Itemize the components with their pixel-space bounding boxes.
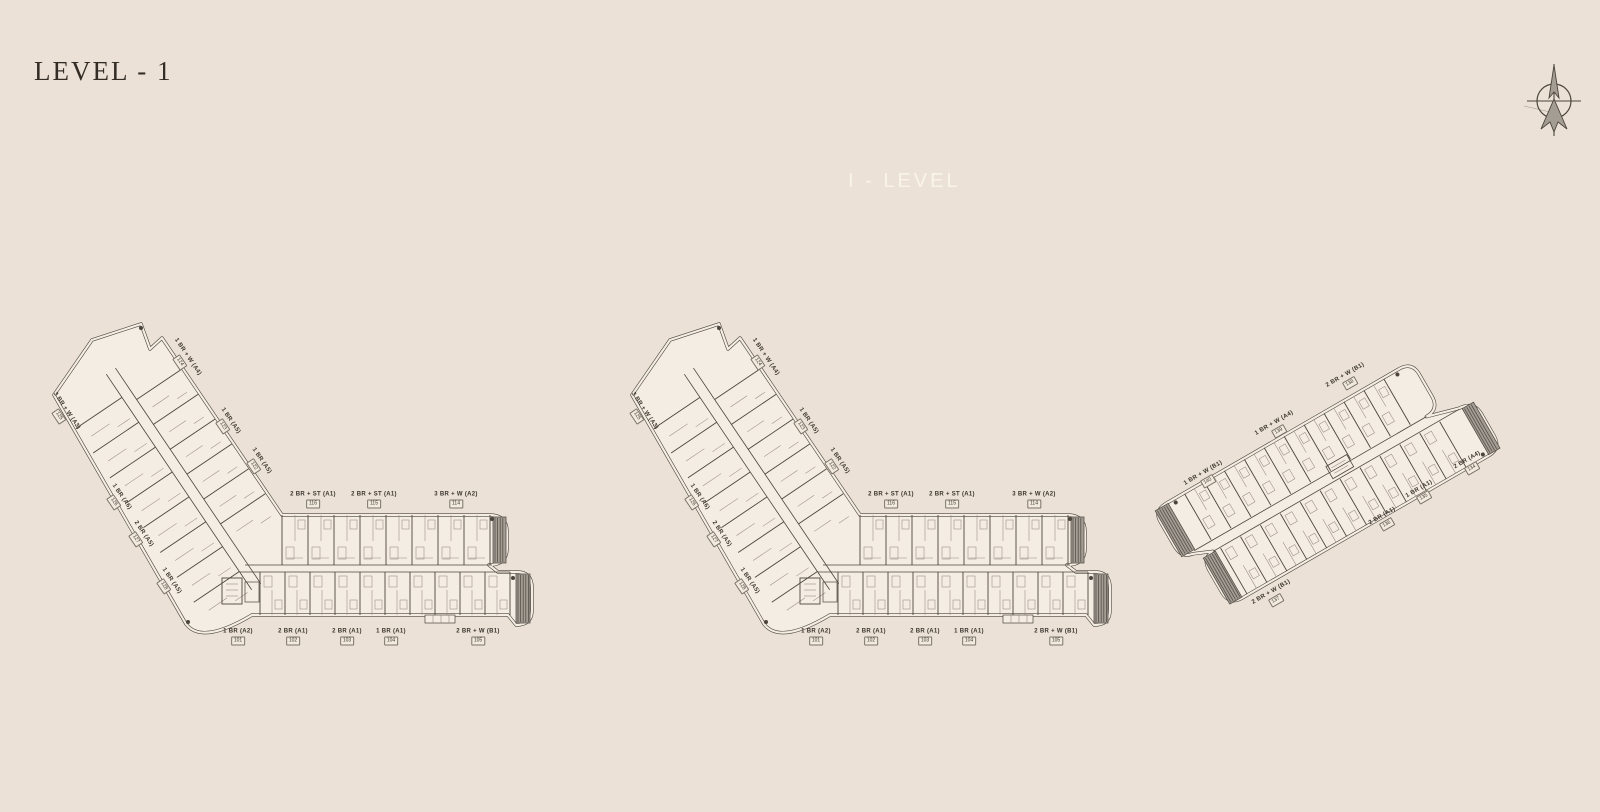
unit-label-building-1: 2 BR (A1)103 xyxy=(332,629,362,646)
unit-type-label: 2 BR + ST (A1) xyxy=(868,492,914,498)
unit-number-badge: 137 xyxy=(1268,593,1285,608)
unit-type-label: 1 BR (A5) xyxy=(798,407,820,435)
unit-number-badge: 123 xyxy=(793,418,808,435)
unit-label-building-3: 1 BR + W (B1)140 xyxy=(1183,460,1229,496)
unit-type-label: 1 BR (A5) xyxy=(220,407,242,435)
unit-number-badge: 128 xyxy=(156,578,171,595)
unit-type-label: 1 BR (A1) xyxy=(376,629,406,635)
unit-label-building-2: 2 BR (A1)103 xyxy=(910,629,940,646)
unit-type-label: 1 BR (A6) xyxy=(111,483,133,511)
unit-label-building-1: 1 BR (A6)126 xyxy=(102,483,133,517)
unit-type-label: 1 BR (A2) xyxy=(223,629,253,635)
unit-label-building-1: 1 BR + W (A4)124 xyxy=(164,337,202,382)
unit-number-badge: 136 xyxy=(1379,517,1396,532)
unit-number-badge: 123 xyxy=(215,418,230,435)
unit-label-building-1: 3 BR + W (A2)114 xyxy=(434,492,477,509)
unit-type-label: 2 BR (A5) xyxy=(133,520,155,548)
unit-type-label: 2 BR (A1) xyxy=(278,629,308,635)
unit-number-badge: 126 xyxy=(684,494,699,511)
unit-number-badge: 114 xyxy=(449,500,463,509)
unit-label-building-2: 2 BR (A1)102 xyxy=(856,629,886,646)
unit-label-building-1: 2 BR (A1)102 xyxy=(278,629,308,646)
unit-number-badge: 116 xyxy=(884,500,898,509)
unit-label-building-2: 1 BR (A5)128 xyxy=(730,567,761,601)
unit-label-building-2: 3 BR + W (A2)114 xyxy=(1012,492,1055,509)
unit-type-label: 3 BR + W (A2) xyxy=(434,492,477,498)
unit-label-building-1: 2 BR + ST (A1)116 xyxy=(290,492,336,509)
unit-type-label: 2 BR + W (B1) xyxy=(456,629,499,635)
unit-number-badge: 115 xyxy=(367,500,381,509)
unit-type-label: 3 BR + W (A2) xyxy=(1012,492,1055,498)
unit-label-building-1: 1 BR (A5)128 xyxy=(152,567,183,601)
unit-label-building-3: 2 BR (A1)136 xyxy=(1368,506,1402,536)
unit-number-badge: 140 xyxy=(1200,474,1217,489)
unit-label-building-1: 1 BR (A5)122 xyxy=(242,447,273,481)
unit-number-badge: 134 xyxy=(1464,461,1481,476)
unit-labels-layer: 1 BR + W (A4)1241 BR (A5)1231 BR (A5)122… xyxy=(0,0,1600,812)
unit-label-building-2: 2 BR + W (B1)105 xyxy=(1034,629,1077,646)
unit-number-badge: 103 xyxy=(918,637,932,646)
unit-number-badge: 127 xyxy=(706,531,721,548)
unit-label-building-2: 1 BR (A1)104 xyxy=(954,629,984,646)
unit-number-badge: 126 xyxy=(106,494,121,511)
unit-number-badge: 128 xyxy=(734,578,749,595)
unit-label-building-2: 1 BR (A5)123 xyxy=(789,407,820,441)
unit-type-label: 2 BR (A1) xyxy=(332,629,362,635)
unit-label-building-3: 1 BR + W (A4)139 xyxy=(1254,410,1300,446)
unit-label-building-3: 1 BR (A1)135 xyxy=(1405,479,1439,509)
unit-label-building-2: 1 BR + W (A4)124 xyxy=(742,337,780,382)
unit-number-badge: 125 xyxy=(629,408,644,425)
unit-type-label: 1 BR (A5) xyxy=(251,447,273,475)
unit-number-badge: 139 xyxy=(1271,424,1288,439)
unit-number-badge: 114 xyxy=(1027,500,1041,509)
unit-label-building-2: 2 BR (A5)127 xyxy=(702,520,733,554)
unit-type-label: 2 BR + W (B1) xyxy=(1251,579,1292,606)
unit-number-badge: 101 xyxy=(231,637,245,646)
unit-number-badge: 122 xyxy=(824,458,839,475)
unit-number-badge: 104 xyxy=(962,637,976,646)
unit-number-badge: 101 xyxy=(809,637,823,646)
unit-number-badge: 102 xyxy=(864,637,878,646)
unit-number-badge: 116 xyxy=(306,500,320,509)
unit-type-label: 1 BR (A2) xyxy=(801,629,831,635)
unit-type-label: 2 BR (A1) xyxy=(1368,506,1397,526)
unit-type-label: 2 BR (A4) xyxy=(1453,450,1482,470)
unit-type-label: 2 BR (A1) xyxy=(910,629,940,635)
unit-number-badge: 122 xyxy=(246,458,261,475)
unit-type-label: 3 BR + W (A3) xyxy=(52,391,81,430)
unit-number-badge: 127 xyxy=(128,531,143,548)
unit-type-label: 3 BR + W (A3) xyxy=(630,391,659,430)
unit-number-badge: 135 xyxy=(1416,490,1433,505)
unit-label-building-1: 1 BR (A1)104 xyxy=(376,629,406,646)
unit-type-label: 1 BR (A5) xyxy=(161,567,183,595)
floor-plan-page: LEVEL - 1 I - LEVEL 1 BR + W (A4)1241 BR… xyxy=(0,0,1600,812)
unit-type-label: 1 BR + W (A4) xyxy=(1254,410,1295,437)
unit-type-label: 2 BR + ST (A1) xyxy=(290,492,336,498)
unit-type-label: 2 BR (A1) xyxy=(856,629,886,635)
unit-number-badge: 103 xyxy=(340,637,354,646)
unit-number-badge: 102 xyxy=(286,637,300,646)
unit-label-building-1: 2 BR + ST (A1)115 xyxy=(351,492,397,509)
unit-type-label: 1 BR (A6) xyxy=(689,483,711,511)
unit-label-building-1: 2 BR + W (B1)105 xyxy=(456,629,499,646)
unit-label-building-1: 1 BR (A5)123 xyxy=(211,407,242,441)
unit-type-label: 1 BR + W (A4) xyxy=(173,337,202,376)
unit-label-building-2: 3 BR + W (A3)125 xyxy=(621,391,659,436)
unit-label-building-2: 2 BR + ST (A1)115 xyxy=(929,492,975,509)
unit-number-badge: 124 xyxy=(172,354,187,371)
unit-type-label: 2 BR (A5) xyxy=(711,520,733,548)
unit-number-badge: 124 xyxy=(750,354,765,371)
unit-type-label: 2 BR + W (B1) xyxy=(1034,629,1077,635)
unit-label-building-1: 2 BR (A5)127 xyxy=(124,520,155,554)
unit-number-badge: 115 xyxy=(945,500,959,509)
unit-label-building-2: 1 BR (A2)101 xyxy=(801,629,831,646)
unit-number-badge: 105 xyxy=(1049,637,1063,646)
unit-type-label: 2 BR + ST (A1) xyxy=(929,492,975,498)
unit-label-building-1: 3 BR + W (A3)125 xyxy=(43,391,81,436)
unit-type-label: 1 BR (A1) xyxy=(954,629,984,635)
unit-type-label: 1 BR + W (B1) xyxy=(1183,460,1224,487)
unit-number-badge: 104 xyxy=(384,637,398,646)
unit-number-badge: 125 xyxy=(51,408,66,425)
unit-type-label: 1 BR + W (A4) xyxy=(751,337,780,376)
unit-label-building-2: 1 BR (A5)122 xyxy=(820,447,851,481)
unit-label-building-3: 2 BR (A4)134 xyxy=(1453,450,1487,480)
unit-type-label: 1 BR (A5) xyxy=(829,447,851,475)
unit-type-label: 2 BR + ST (A1) xyxy=(351,492,397,498)
unit-label-building-1: 1 BR (A2)101 xyxy=(223,629,253,646)
unit-type-label: 1 BR (A5) xyxy=(739,567,761,595)
unit-label-building-3: 2 BR + W (B1)137 xyxy=(1251,579,1297,615)
unit-label-building-3: 2 BR + W (B1)138 xyxy=(1325,362,1371,398)
unit-type-label: 2 BR + W (B1) xyxy=(1325,362,1366,389)
unit-type-label: 1 BR (A1) xyxy=(1405,479,1434,499)
unit-label-building-2: 1 BR (A6)126 xyxy=(680,483,711,517)
unit-number-badge: 105 xyxy=(471,637,485,646)
unit-number-badge: 138 xyxy=(1342,376,1359,391)
unit-label-building-2: 2 BR + ST (A1)116 xyxy=(868,492,914,509)
